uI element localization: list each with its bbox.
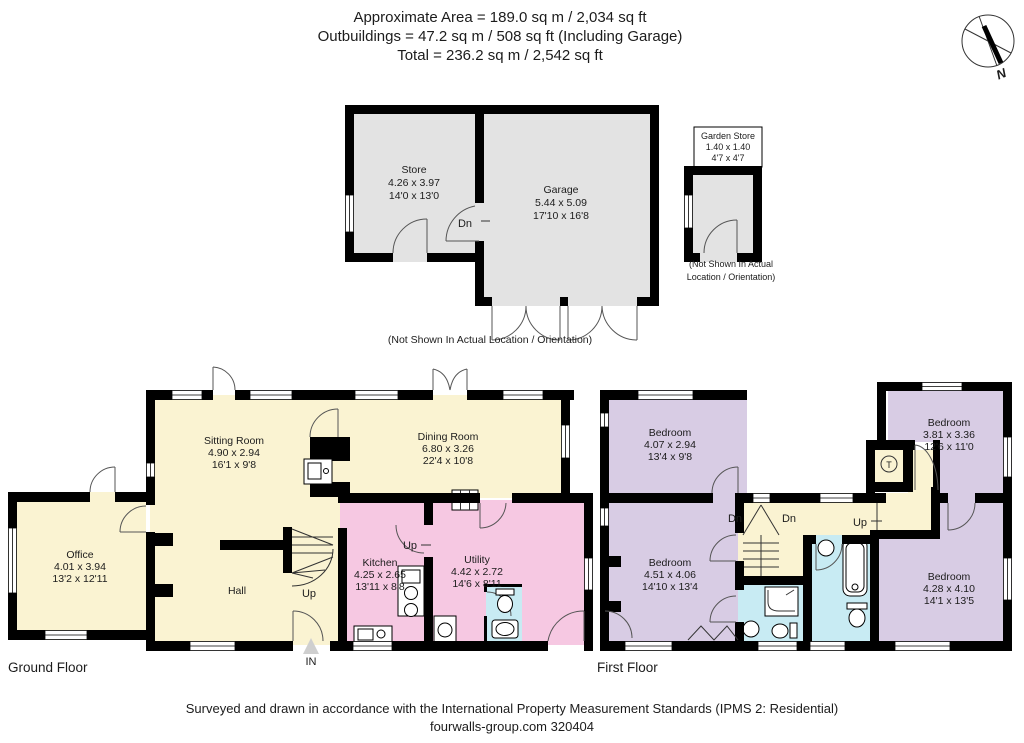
sitting-room-imperial: 16'1 x 9'8 [212, 459, 256, 471]
window [9, 528, 17, 593]
bedroom-name: Bedroom [928, 417, 971, 429]
kitchen-imperial: 13'11 x 8'8 [355, 581, 405, 593]
window [753, 494, 770, 503]
hall-up-label: Up [302, 588, 316, 600]
kitchen-name: Kitchen [362, 557, 397, 569]
window [172, 391, 202, 400]
stairwell-area [738, 535, 812, 576]
washing-machine [434, 616, 456, 642]
window [355, 391, 398, 400]
landing-dn-left-label: Dn [728, 513, 742, 525]
hall-label: Hall [228, 585, 246, 597]
garage-metric: 5.44 x 5.09 [535, 197, 587, 209]
dining-room-name: Dining Room [418, 431, 479, 443]
footer-standards-line: Surveyed and drawn in accordance with th… [186, 701, 839, 716]
dining-room-label: Dining Room 6.80 x 3.26 22'4 x 10'8 [418, 431, 479, 467]
window [45, 631, 87, 640]
footer-brand-line: fourwalls-group.com 320404 [430, 719, 594, 734]
utility-metric: 4.42 x 2.72 [451, 566, 503, 578]
bedroom-name: Bedroom [928, 571, 971, 583]
kitchen-sink [354, 626, 392, 643]
bedroom-metric: 4.28 x 4.10 [923, 583, 975, 595]
sitting-room-metric: 4.90 x 2.94 [208, 447, 260, 459]
window [585, 558, 593, 590]
window [895, 642, 950, 651]
office-imperial: 13'2 x 12'11 [52, 573, 107, 585]
ground-floor: Sitting Room 4.90 x 2.94 16'1 x 9'8 Dini… [8, 367, 593, 675]
garage-note: (Not Shown In Actual Location / Orientat… [388, 334, 592, 346]
sitting-room-name: Sitting Room [204, 435, 264, 447]
window [820, 494, 853, 503]
office-metric: 4.01 x 3.94 [54, 561, 106, 573]
first-floor: T [597, 382, 1012, 675]
window [638, 391, 693, 400]
compass-north-label: N [994, 65, 1009, 83]
tank-label: T [886, 460, 892, 470]
bedroom-imperial: 14'10 x 13'4 [642, 581, 698, 593]
first-floor-title: First Floor [597, 660, 658, 675]
outbuilding-garage-store: Store 4.26 x 3.97 14'0 x 13'0 Garage 5.4… [345, 105, 659, 346]
footer: Surveyed and drawn in accordance with th… [186, 701, 839, 734]
office-name: Office [66, 549, 93, 561]
garden-store-imperial: 4'7 x 4'7 [712, 153, 745, 163]
compass-icon: N [962, 15, 1014, 82]
utility-imperial: 14'6 x 8'11 [452, 578, 502, 590]
garden-store-note-1: (Not Shown In Actual [689, 259, 773, 269]
bedroom-name: Bedroom [649, 557, 692, 569]
floorplan-page: Approximate Area = 189.0 sq m / 2,034 sq… [0, 0, 1024, 743]
bedroom-top-left-label: Bedroom 4.07 x 2.94 13'4 x 9'8 [644, 427, 696, 463]
store-imperial: 14'0 x 13'0 [389, 190, 439, 202]
window [758, 642, 797, 651]
floorplan-canvas: Approximate Area = 189.0 sq m / 2,034 sq… [0, 0, 1024, 743]
kitchen-up-label: Up [403, 540, 417, 552]
window [147, 463, 155, 477]
utility-name: Utility [464, 554, 490, 566]
window [625, 642, 672, 651]
window [503, 391, 543, 400]
window [601, 413, 609, 427]
window [922, 383, 962, 391]
landing-dn-right-label: Dn [782, 513, 796, 525]
garage-imperial: 17'10 x 16'8 [533, 210, 589, 222]
store-name: Store [401, 164, 426, 176]
garden-store-name: Garden Store [701, 131, 755, 141]
dining-room-imperial: 22'4 x 10'8 [423, 455, 473, 467]
bedroom-imperial: 13'4 x 9'8 [648, 451, 692, 463]
window [1004, 437, 1012, 477]
window [562, 425, 570, 458]
header-area-line: Approximate Area = 189.0 sq m / 2,034 sq… [353, 9, 647, 26]
bedroom-metric: 4.07 x 2.94 [644, 439, 696, 451]
bedroom-imperial: 14'1 x 13'5 [924, 595, 974, 607]
window [190, 642, 235, 651]
dining-room-metric: 6.80 x 3.26 [422, 443, 474, 455]
bedroom-metric: 3.81 x 3.36 [923, 429, 975, 441]
window [810, 642, 845, 651]
bedroom-bottom-right-label: Bedroom 4.28 x 4.10 14'1 x 13'5 [923, 571, 975, 607]
window [250, 391, 292, 400]
sitting-hall-area [150, 395, 365, 645]
bedroom-name: Bedroom [649, 427, 692, 439]
garage-name: Garage [543, 184, 578, 196]
bedroom-metric: 4.51 x 4.06 [644, 569, 696, 581]
garden-store-note-2: Location / Orientation) [687, 272, 776, 282]
kitchen-metric: 4.25 x 2.65 [354, 569, 406, 581]
entrance-in-label: IN [306, 656, 317, 668]
header-outbuildings-line: Outbuildings = 47.2 sq m / 508 sq ft (In… [318, 28, 683, 45]
landing-up-label: Up [853, 517, 867, 529]
window [1004, 558, 1012, 600]
bedroom-top-right-label: Bedroom 3.81 x 3.36 12'6 x 11'0 [923, 417, 975, 453]
bedroom-imperial: 12'6 x 11'0 [924, 441, 974, 453]
french-doors [433, 369, 467, 390]
header-total-line: Total = 236.2 sq m / 2,542 sq ft [397, 47, 603, 64]
garden-store-metric: 1.40 x 1.40 [706, 142, 751, 152]
store-metric: 4.26 x 3.97 [388, 177, 440, 189]
sitting-room-label: Sitting Room 4.90 x 2.94 16'1 x 9'8 [204, 435, 264, 471]
window [353, 642, 392, 651]
bedroom-bottom-left-label: Bedroom 4.51 x 4.06 14'10 x 13'4 [642, 557, 698, 593]
garden-store-window [685, 195, 693, 228]
office-front-door [90, 467, 115, 492]
garage-dn-label: Dn [458, 218, 472, 230]
store-window [346, 195, 354, 232]
ground-floor-title: Ground Floor [8, 660, 88, 675]
garden-door [213, 367, 235, 390]
window [601, 508, 609, 526]
header: Approximate Area = 189.0 sq m / 2,034 sq… [318, 9, 683, 64]
garden-store: Garden Store 1.40 x 1.40 4'7 x 4'7 (Not … [684, 127, 775, 282]
